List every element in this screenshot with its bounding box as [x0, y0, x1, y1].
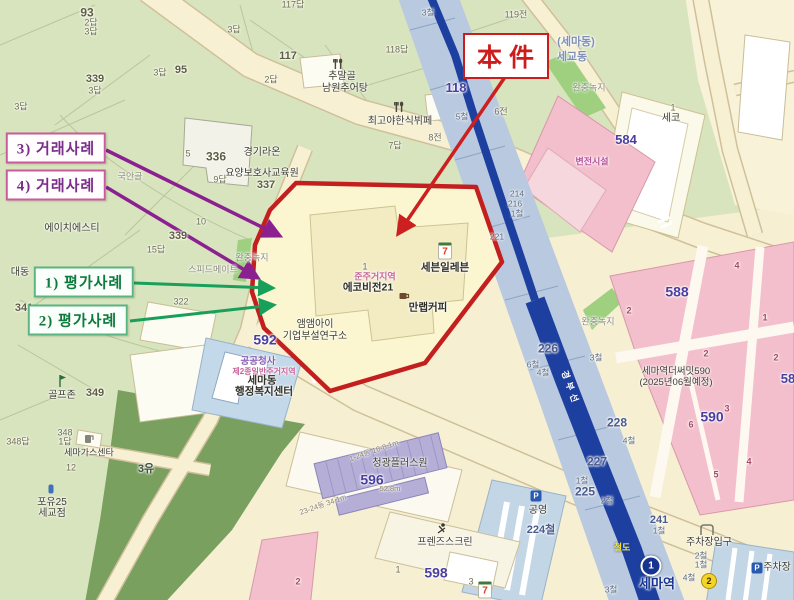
parcel-label-5b: 5 — [185, 149, 190, 158]
block-label-584: 584 — [615, 133, 637, 147]
poi-poyou-line1: 포유25 — [37, 498, 67, 509]
parcel-label-322: 322 — [173, 297, 188, 306]
block-label-598: 598 — [424, 566, 447, 581]
rail-parcel-4cheol-c: 4철 — [683, 574, 696, 583]
sale-case4-box: 4) 거래사례 — [6, 170, 106, 201]
poi-thesummit-line1: 세마역더써밋590 — [642, 367, 710, 377]
subparcel-590-5: 5 — [713, 470, 718, 479]
block-label-592: 592 — [253, 333, 276, 348]
parcel-label-2pink: 2 — [295, 577, 300, 586]
measure-label-52m: 52.8m — [380, 485, 401, 493]
rail-parcel-1cheol-d: 1철 — [695, 561, 708, 570]
parcel-label-117: 117 — [279, 51, 297, 63]
rail-parcel-3cheol-bot: 3철 — [605, 586, 618, 595]
eval-case1-box: 1) 평가사례 — [34, 267, 134, 298]
buffer-label-2: 완충녹지 — [581, 317, 614, 326]
poi-mmai-line2: 기업부설연구소 — [283, 332, 347, 343]
rail-parcel-5cheol: 5철 — [456, 113, 469, 122]
poi-chumalgol-line1: 추말골 — [328, 72, 356, 83]
parcel-label-348dap: 348답 — [6, 437, 29, 446]
topright-building — [738, 35, 790, 140]
parcel-label-3f: 3 — [468, 577, 473, 586]
parcel-label-3dap-a: 3답 — [84, 27, 97, 36]
eval-case2-box: 2) 평가사례 — [28, 305, 128, 336]
poi-gongyoung: 공영 — [529, 506, 547, 517]
parcel-label-9dap: 9답 — [213, 175, 226, 184]
seveneleven-icon: 7 — [438, 243, 452, 260]
parcel-label-337: 337 — [257, 180, 275, 192]
poi-seveneleven: 세븐일레븐 — [421, 262, 469, 273]
poi-hst: 에이치에스티 — [44, 224, 99, 235]
subparcel-590-4: 4 — [746, 457, 751, 466]
parcel-label-3dap-c: 3답 — [153, 68, 166, 77]
poi-chumalgol-line2: 남원추어탕 — [322, 84, 368, 95]
poi-golfzone: 골프존 — [48, 391, 76, 402]
block-label-58: 58 — [781, 372, 794, 386]
parcel-label-7dap: 7답 — [388, 141, 401, 150]
parcel-label-6jeon: 6전 — [494, 107, 507, 116]
poi-gukangol: 국안골 — [118, 172, 143, 181]
parcel-label-119jeon: 119전 — [505, 10, 528, 19]
poi-parking-entrance: 주차장입구 — [686, 538, 732, 549]
rail-parcel-221: 221 — [490, 233, 504, 242]
rail-parcel-216: 216 — [508, 200, 522, 209]
poi-thesummit-line2: (2025년06월예정) — [640, 378, 713, 388]
block-label-224cheol: 224철 — [527, 525, 555, 537]
subway-line1-badge: 1 — [641, 556, 662, 577]
map-shapes-layer — [0, 0, 794, 600]
rail-parcel-3cheol-mid: 3철 — [590, 354, 603, 363]
block-label-588: 588 — [665, 285, 688, 300]
parcel-label-118dap: 118답 — [386, 45, 409, 54]
bottle-icon — [49, 485, 54, 494]
subparcel-588-1: 1 — [762, 313, 767, 322]
poi-semadong-office-line2: 행정복지센터 — [235, 386, 293, 397]
rail-parcel-4cheol-b: 4철 — [623, 437, 636, 446]
parcel-label-339b: 339 — [169, 231, 187, 243]
parcel-label-1dap: 1답 — [58, 437, 71, 446]
block-label-225: 225 — [575, 486, 595, 499]
poi-parking-right: 주차장 — [763, 563, 791, 574]
poi-public-office: 공공청사 — [241, 357, 276, 367]
subparcel-588-4: 4 — [734, 261, 739, 270]
block-label-227: 227 — [587, 456, 607, 469]
rail-parcel-1cheol-c: 1철 — [653, 527, 666, 536]
poi-speedmate: 스피드메이트 — [188, 265, 238, 274]
subject-case-box: 本件 — [463, 33, 549, 79]
station-exit2-badge: 2 — [701, 573, 717, 589]
block-label-118: 118 — [446, 81, 467, 95]
poi-daedong: 대동 — [11, 268, 29, 279]
rail-parcel-4cheol-a: 4철 — [537, 369, 550, 378]
block-label-228: 228 — [607, 417, 627, 430]
parcel-label-349: 349 — [86, 388, 104, 400]
poi-raon-line1: 경기라온 — [244, 148, 281, 159]
parcel-label-339a: 339 — [86, 74, 104, 86]
block-label-226: 226 — [538, 343, 558, 356]
parcel-label-12: 12 — [66, 463, 76, 472]
zone-label-quasi-residential: 준주거지역 — [354, 272, 395, 281]
parcel-label-117dap: 117답 — [282, 0, 305, 9]
subparcel-586-2: 2 — [773, 353, 778, 362]
poi-friends-screen: 프렌즈스크린 — [417, 538, 472, 549]
parcel-label-10: 10 — [196, 217, 206, 226]
poi-chunggwang: 청광플러스원 — [372, 459, 427, 470]
parking-icon-right: P — [752, 563, 763, 574]
rail-parcel-214: 214 — [510, 190, 524, 199]
parcel-label-1-seko: 1 — [670, 103, 675, 112]
parcel-label-1b: 1 — [395, 565, 400, 574]
district-label-semadong: (세마동) — [557, 37, 595, 49]
seveneleven-icon-2: 7 — [478, 582, 492, 599]
parcel-label-3dap-d: 3답 — [88, 86, 101, 95]
poi-poyou-line2: 세교점 — [38, 509, 66, 520]
rail-label-railroad: 철도 — [614, 543, 631, 552]
rail-parcel-1cheol-a: 1철 — [511, 210, 524, 219]
parcel-label-8jeon: 8전 — [428, 133, 441, 142]
poi-substation: 변전시설 — [575, 157, 608, 166]
poi-manlab-coffee: 만랩커피 — [409, 302, 448, 313]
poi-raon-line2: 요양보호사교육원 — [225, 169, 299, 180]
parking-icon-gongyoung: P — [531, 491, 542, 502]
parcel-label-3dap-e: 3답 — [14, 102, 27, 111]
sale-case3-box: 3) 거래사례 — [6, 133, 106, 164]
station-label-sema: 세마역 — [639, 577, 675, 591]
parcel-label-2dap-b: 2답 — [264, 75, 277, 84]
buffer-label-1: 완충녹지 — [572, 83, 605, 92]
subparcel-590-3: 3 — [724, 404, 729, 413]
poi-semagas: 세마가스센타 — [64, 448, 114, 457]
subparcel-590-6: 6 — [688, 420, 693, 429]
parcel-label-3dap-b: 3답 — [227, 25, 240, 34]
buffer-label-3: 완충녹지 — [235, 253, 268, 262]
appraisal-map-figure: 117답 93 2답 3답 3답 117 95 3답 2답 339 3답 3답 … — [0, 0, 794, 600]
poi-seko: 세코 — [662, 114, 680, 125]
parcel-label-336: 336 — [206, 151, 226, 164]
parcel-label-95: 95 — [175, 65, 187, 77]
district-label-segyodong: 세교동 — [557, 52, 587, 64]
poi-mmai-line1: 앰앰아이 — [297, 320, 334, 331]
subparcel-590-2: 2 — [703, 349, 708, 358]
rail-parcel-3cheol-top: 3철 — [422, 9, 435, 18]
parcel-label-15dap: 15답 — [147, 245, 165, 254]
rail-parcel-2cheol: 2철 — [601, 497, 614, 506]
block-label-590: 590 — [700, 410, 723, 425]
subparcel-588-2: 2 — [626, 306, 631, 315]
parcel-label-3yu: 3유 — [138, 464, 154, 476]
poi-ecovision21: 에코비전21 — [343, 282, 393, 293]
poi-choigoya: 최고야한식뷔페 — [368, 117, 432, 128]
